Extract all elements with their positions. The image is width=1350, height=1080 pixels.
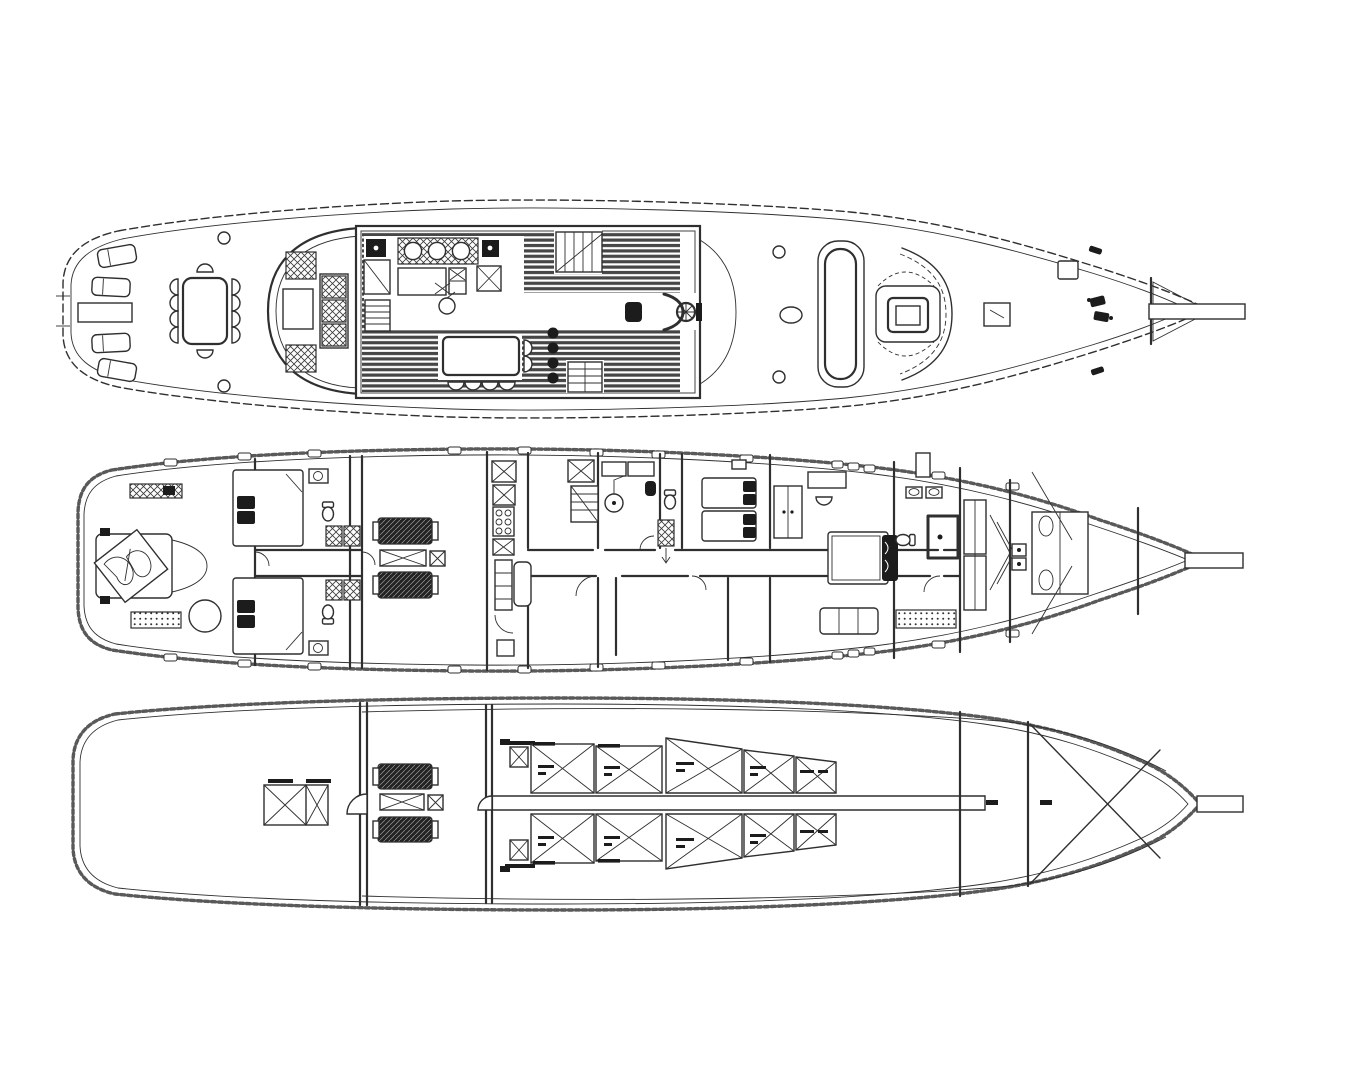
- staircase-down: [568, 362, 602, 392]
- slatted-bench: [896, 610, 956, 628]
- sun-lounger: [97, 358, 138, 382]
- cockpit-table: [283, 289, 313, 329]
- anchor-winch-icon: [1087, 295, 1113, 322]
- main-deck-plan: [56, 200, 1245, 418]
- galley-sink-icon: [439, 298, 455, 314]
- galley-seat: [514, 562, 531, 606]
- storage-crate: [264, 779, 331, 825]
- cabin-table: [189, 600, 221, 632]
- cockpit-bench: [320, 274, 348, 348]
- shower-cabinet: [928, 516, 958, 558]
- tank: [666, 814, 742, 869]
- toilet-icon: [323, 502, 334, 521]
- toilet-icon: [323, 605, 334, 624]
- tank: [744, 814, 794, 857]
- guest-cabin-starboard: [233, 578, 334, 655]
- guest-cabin-port: [233, 469, 334, 546]
- tank-deck-plan: [73, 698, 1243, 910]
- wardrobes: [326, 526, 360, 600]
- cockpit-seat: [286, 252, 316, 279]
- bowsprit: [1185, 553, 1243, 568]
- desk: [808, 472, 846, 488]
- tank: [796, 757, 836, 793]
- plans-canvas: [0, 0, 1350, 1080]
- keel-spine: [478, 796, 985, 810]
- tank: [596, 814, 662, 863]
- mid-staircase: [658, 520, 674, 563]
- port-tank-row: [505, 738, 836, 793]
- deckhouse: [356, 226, 736, 398]
- bowsprit: [1149, 304, 1245, 319]
- tank: [531, 814, 594, 865]
- genset-icon: [373, 572, 438, 598]
- tank: [596, 744, 662, 793]
- shower-room: [602, 462, 676, 512]
- tank: [666, 738, 742, 793]
- staircase-up: [556, 232, 602, 272]
- starboard-tank-row: [505, 814, 836, 869]
- cabin-sofa: [172, 540, 207, 592]
- galley-stairs: [571, 486, 598, 522]
- foredeck: [773, 241, 1113, 387]
- sun-lounger: [92, 333, 131, 353]
- skylight-hatch: [876, 272, 940, 356]
- yacht-deck-plans-sheet: [0, 0, 1350, 1080]
- cockpit-seat: [286, 345, 316, 372]
- fridge-icon: [495, 560, 512, 610]
- genset-icon: [373, 764, 438, 789]
- lower-deck-plan: [78, 447, 1243, 673]
- aft-master-cabin: [94, 484, 221, 632]
- bow-platform: [1149, 278, 1245, 344]
- lower-galley: [492, 460, 598, 656]
- genset-icon: [373, 817, 438, 842]
- vip-sofa: [820, 608, 878, 634]
- aft-dining-table: [170, 264, 240, 358]
- cleat-icon: [1090, 366, 1104, 376]
- galley-ladder: [365, 300, 390, 331]
- deck-fitting: [218, 380, 230, 392]
- helm-seat: [625, 302, 642, 322]
- sun-lounger: [92, 277, 131, 297]
- windshield: [700, 240, 736, 384]
- bowsprit: [1197, 796, 1243, 812]
- cleat-icon: [1088, 245, 1102, 255]
- door-arc: [347, 794, 367, 814]
- twin-cabin: [702, 460, 756, 541]
- generator-room: [373, 764, 443, 842]
- cabin-bench: [131, 612, 181, 628]
- aft-cockpit: [268, 228, 360, 394]
- workbench: [380, 550, 445, 566]
- sun-lounger: [97, 244, 138, 268]
- forward-bathroom: [896, 487, 958, 628]
- tank: [796, 814, 836, 850]
- stern-table: [78, 303, 132, 322]
- deck-hatch: [780, 307, 802, 323]
- hull-outline: [73, 698, 1200, 910]
- toilet-icon: [896, 535, 915, 546]
- bow-hatch: [1058, 261, 1078, 279]
- sun-pad: [818, 241, 864, 387]
- vip-cabin: [774, 472, 898, 634]
- engine-room: [373, 518, 445, 598]
- bulkheads: [360, 703, 1028, 905]
- tank: [531, 742, 594, 793]
- toilet-icon: [665, 490, 676, 509]
- tank: [744, 750, 794, 793]
- vip-bed: [828, 532, 898, 584]
- genset-icon: [373, 518, 438, 544]
- deck-fitting: [218, 232, 230, 244]
- crew-cabin: [1032, 472, 1088, 634]
